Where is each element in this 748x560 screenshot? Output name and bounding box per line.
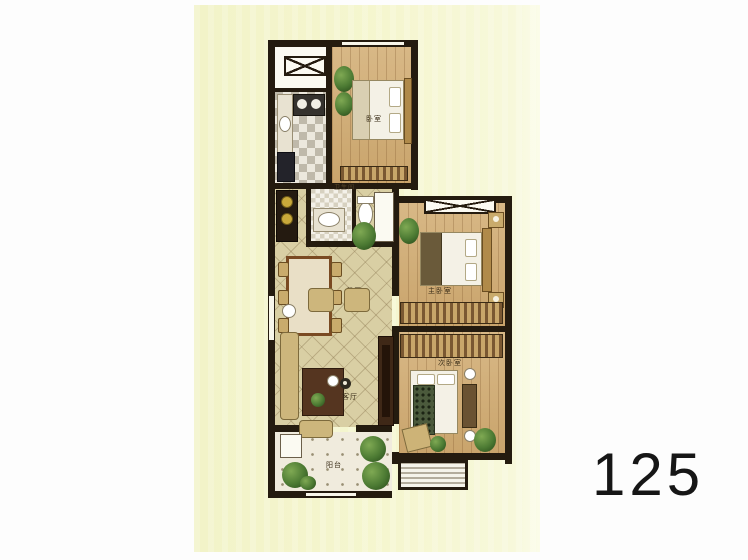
fridge (277, 152, 295, 182)
chair (278, 318, 289, 333)
bench (462, 384, 477, 428)
unit-number: 125 (592, 444, 704, 506)
washbasin (318, 212, 340, 227)
plant-icon (335, 92, 353, 116)
bed-blanket (353, 81, 370, 139)
plant-icon (300, 476, 316, 490)
pillow (389, 113, 401, 133)
plant-icon (311, 393, 325, 407)
bed (352, 80, 404, 140)
wardrobe (400, 334, 503, 358)
pillow (465, 263, 477, 281)
wall-segment (356, 425, 392, 432)
shower (374, 192, 394, 242)
washing-machine (280, 434, 302, 458)
bed-headboard (482, 228, 492, 292)
second-bedroom-label: 次卧室 (438, 360, 462, 368)
wall-segment (411, 40, 418, 190)
plant-icon (360, 436, 386, 462)
chair (278, 262, 289, 277)
side-table (282, 304, 296, 318)
plant-icon (399, 218, 419, 244)
chair (278, 290, 289, 305)
chair (331, 262, 342, 277)
wall-segment (392, 326, 512, 332)
bed-headboard (404, 78, 412, 144)
sofa (280, 332, 299, 420)
pillow (437, 374, 455, 385)
plant-icon (352, 222, 376, 250)
hall-cabinet (276, 190, 298, 242)
bedside-lamp (464, 368, 476, 380)
window-icon (284, 56, 326, 76)
pillow (417, 374, 435, 385)
bed-blanket (421, 233, 442, 285)
nightstand (488, 212, 504, 228)
bay-window (398, 460, 468, 490)
living-label: 客厅 (342, 394, 358, 402)
toilet-tank (357, 196, 374, 204)
window-icon (268, 296, 275, 340)
tv-cabinet (378, 336, 394, 426)
bedroom-top-label: 卧室 (366, 116, 382, 124)
plant-icon (362, 462, 390, 490)
pillow (389, 87, 401, 107)
balcony-label: 阳台 (326, 462, 342, 470)
window-icon (342, 41, 404, 46)
wall-segment (392, 453, 512, 460)
wall-segment (392, 244, 399, 296)
wall-segment (275, 88, 327, 92)
armchair (308, 288, 334, 312)
wall-segment (326, 44, 332, 186)
kitchen-sink (279, 116, 291, 132)
master-bedroom-label: 主卧室 (428, 288, 452, 296)
wall-segment (306, 186, 311, 246)
wardrobe (400, 302, 503, 324)
coffee-table (302, 368, 344, 416)
window-icon (424, 198, 496, 214)
plant-icon (474, 428, 496, 452)
window-icon (306, 492, 356, 497)
stove (293, 94, 325, 116)
plant-icon (430, 436, 446, 452)
armchair (344, 288, 370, 312)
photo-canvas: 卧室 卫生间 主卧室 次卧室 餐厅 (0, 0, 748, 560)
chair (331, 318, 342, 333)
floor-lamp (340, 378, 351, 389)
sofa-chaise (299, 420, 333, 438)
plant-icon (334, 66, 354, 92)
dresser (340, 166, 408, 181)
pillow (465, 239, 477, 257)
bed (420, 232, 482, 286)
decor-bowl (327, 375, 339, 387)
bathroom-label: 卫生间 (334, 184, 355, 192)
